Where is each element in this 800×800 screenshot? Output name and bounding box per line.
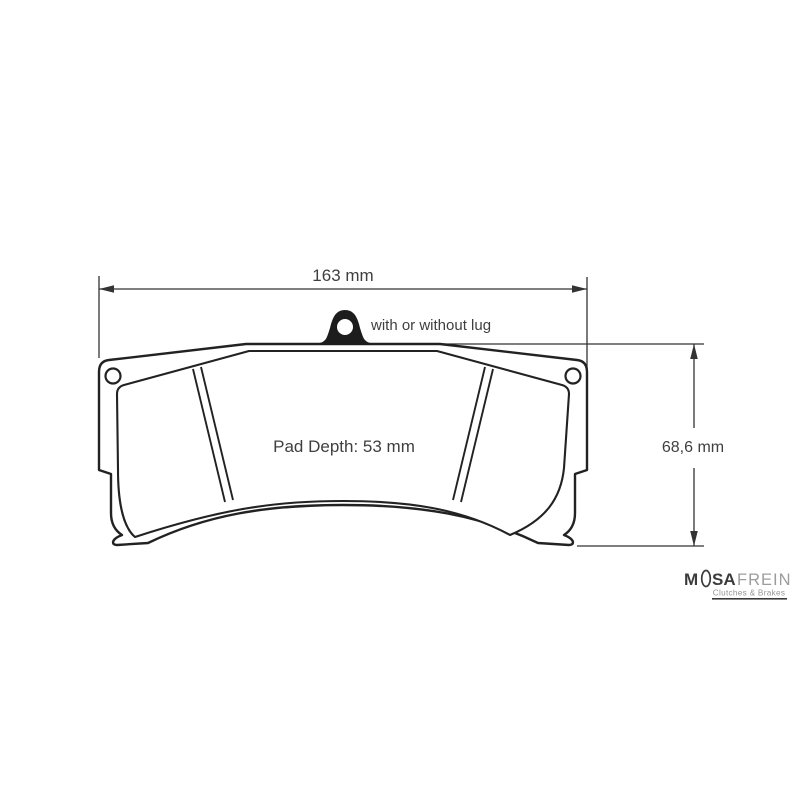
logo-letters-sa: SA	[712, 570, 736, 589]
brake-pad-diagram-svg: 163 mm 68,6 mm with	[0, 0, 800, 800]
height-dimension-label: 68,6 mm	[662, 439, 724, 456]
brake-pad-technical-drawing: 163 mm 68,6 mm with	[0, 0, 800, 800]
logo-o-icon	[702, 571, 711, 587]
lug-annotation: with or without lug	[370, 317, 491, 334]
lug-hole	[337, 319, 353, 335]
width-dimension-label: 163 mm	[312, 266, 373, 285]
mounting-hole-right	[566, 369, 581, 384]
mosa-frein-logo: M SA FREIN Clutches & Brakes	[684, 570, 792, 600]
logo-tagline: Clutches & Brakes	[713, 589, 785, 598]
mounting-hole-left	[106, 369, 121, 384]
logo-word-frein: FREIN	[737, 571, 792, 589]
pad-depth-label: Pad Depth: 53 mm	[273, 437, 415, 456]
height-arrow-down-icon	[690, 531, 698, 546]
logo-letter-m: M	[684, 570, 698, 589]
width-arrow-right-icon	[572, 285, 587, 293]
height-arrow-up-icon	[690, 344, 698, 359]
width-arrow-left-icon	[99, 285, 114, 293]
logo-underline	[712, 598, 787, 600]
